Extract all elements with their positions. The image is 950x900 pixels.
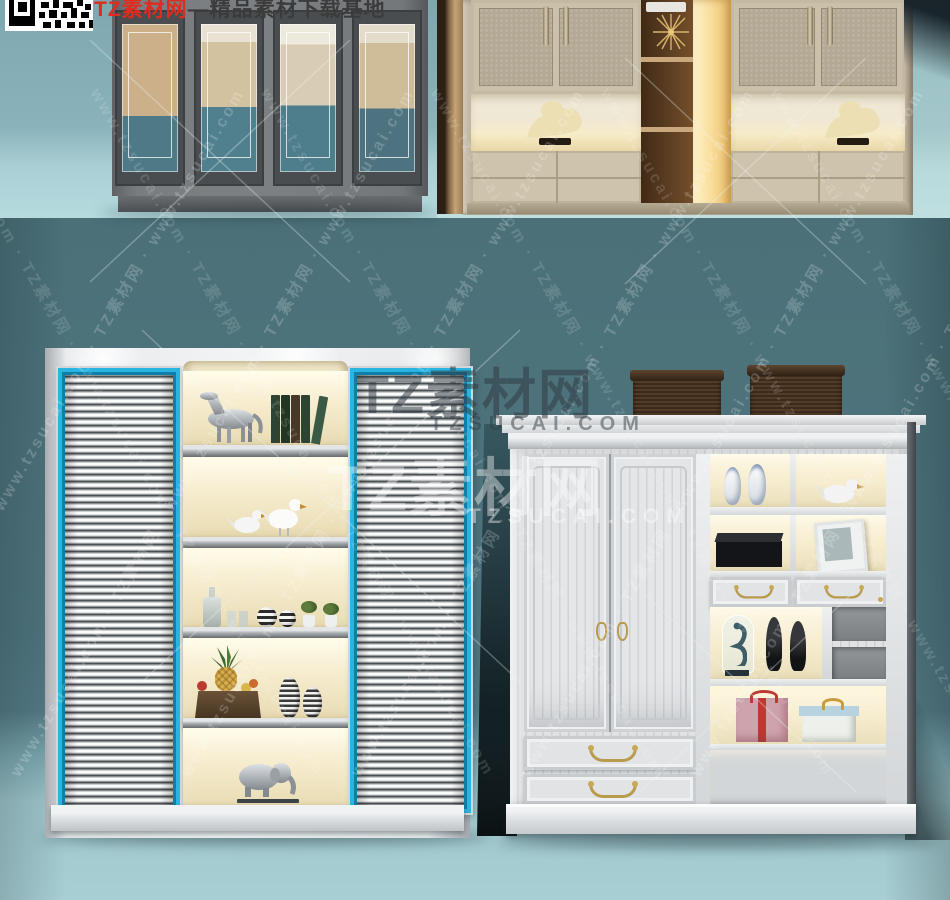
site-title: TZ素材网—精品素材下载基地 <box>94 0 386 23</box>
site-title-tagline: —精品素材下载基地 <box>188 0 386 21</box>
site-title-brand: TZ素材网 <box>94 0 188 21</box>
watermark-overlay: www.tzsucai.com · TZ素材网 · www.tzsucai.co… <box>0 0 950 900</box>
qr-code <box>5 0 93 31</box>
watermark-cross-lines <box>0 0 950 900</box>
furniture-collage: www.tzsucai.com · TZ素材网 · www.tzsucai.co… <box>0 0 950 900</box>
